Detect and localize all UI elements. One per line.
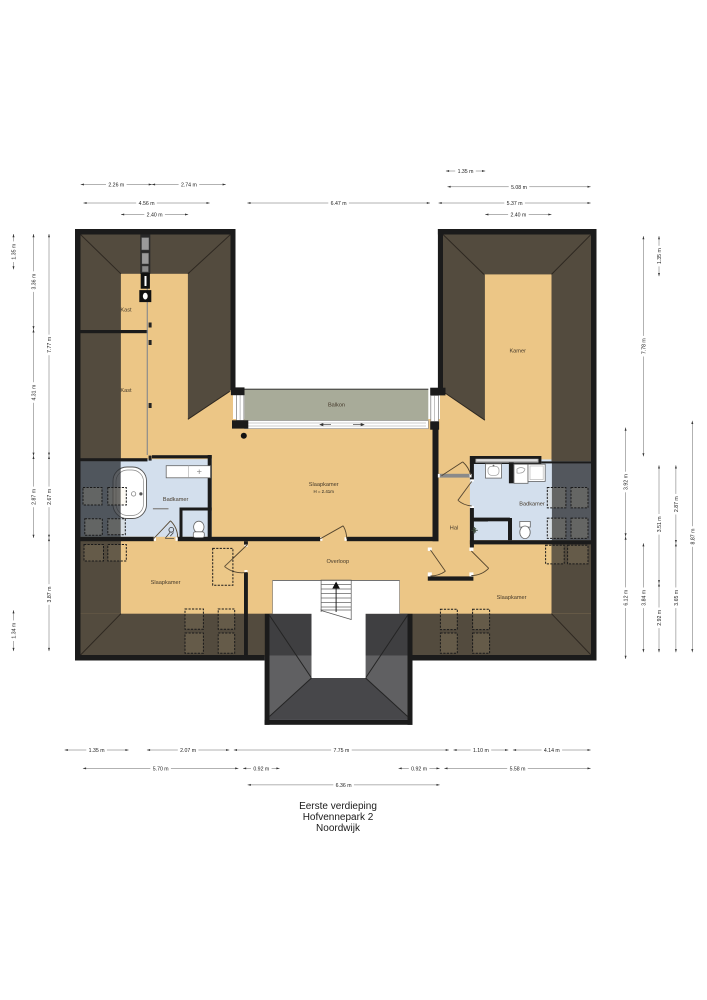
svg-text:5.08 m: 5.08 m (511, 185, 527, 191)
svg-text:1.35 m: 1.35 m (657, 248, 663, 264)
svg-text:6.47 m: 6.47 m (331, 201, 347, 207)
svg-text:2.74 m: 2.74 m (181, 183, 197, 189)
svg-text:Eerste verdieping: Eerste verdieping (299, 801, 377, 812)
svg-text:7.78 m: 7.78 m (642, 338, 648, 354)
svg-text:2.67 m: 2.67 m (47, 489, 53, 505)
svg-text:5.58 m: 5.58 m (510, 767, 526, 773)
svg-text:2.07 m: 2.07 m (180, 748, 196, 754)
svg-text:3.36 m: 3.36 m (32, 274, 38, 290)
svg-text:Slaapkamer: Slaapkamer (151, 580, 181, 586)
svg-text:4.31 m: 4.31 m (32, 385, 38, 401)
svg-text:Badkamer: Badkamer (519, 502, 545, 508)
svg-text:7.77 m: 7.77 m (47, 337, 53, 353)
svg-text:3.65 m: 3.65 m (674, 590, 680, 606)
svg-text:3.51 m: 3.51 m (657, 516, 663, 532)
svg-text:3.84 m: 3.84 m (642, 590, 648, 606)
svg-text:0.92 m: 0.92 m (253, 767, 269, 773)
svg-text:Balkon: Balkon (328, 403, 345, 409)
svg-text:8.87 m: 8.87 m (690, 529, 696, 545)
svg-text:3.87 m: 3.87 m (47, 587, 53, 603)
svg-text:4.14 m: 4.14 m (544, 748, 560, 754)
svg-text:1.34 m: 1.34 m (12, 623, 18, 639)
svg-text:Overloop: Overloop (326, 559, 349, 565)
svg-text:1.10 m: 1.10 m (473, 748, 489, 754)
svg-text:3.92 m: 3.92 m (624, 474, 630, 490)
svg-text:Noordwijk: Noordwijk (316, 823, 361, 834)
svg-text:Hal: Hal (450, 526, 458, 532)
svg-text:Badkamer: Badkamer (163, 497, 189, 503)
svg-text:Slaapkamer: Slaapkamer (497, 595, 527, 601)
svg-text:2.92 m: 2.92 m (657, 610, 663, 626)
svg-text:2.26 m: 2.26 m (108, 183, 124, 189)
svg-text:Kast: Kast (120, 308, 132, 314)
svg-text:2.87 m: 2.87 m (674, 496, 680, 512)
svg-text:5.37 m: 5.37 m (507, 201, 523, 207)
svg-text:5.70 m: 5.70 m (153, 767, 169, 773)
svg-text:6.36 m: 6.36 m (336, 783, 352, 789)
svg-text:4.56 m: 4.56 m (139, 201, 155, 207)
svg-text:H = 2.41m: H = 2.41m (314, 489, 335, 494)
svg-text:Kast: Kast (120, 388, 132, 394)
svg-text:Kamer: Kamer (509, 349, 526, 355)
svg-text:0.92 m: 0.92 m (411, 767, 427, 773)
svg-text:Hofvennepark 2: Hofvennepark 2 (303, 812, 374, 823)
svg-text:2.40 m: 2.40 m (510, 213, 526, 219)
svg-text:Slaapkamer: Slaapkamer (309, 482, 339, 488)
svg-text:2.87 m: 2.87 m (32, 489, 38, 505)
svg-text:2.40 m: 2.40 m (147, 213, 163, 219)
svg-text:1.35 m: 1.35 m (12, 244, 18, 260)
svg-text:1.35 m: 1.35 m (89, 748, 105, 754)
svg-text:7.75 m: 7.75 m (333, 748, 349, 754)
svg-text:6.12 m: 6.12 m (624, 590, 630, 606)
svg-text:1.35 m: 1.35 m (458, 169, 474, 175)
